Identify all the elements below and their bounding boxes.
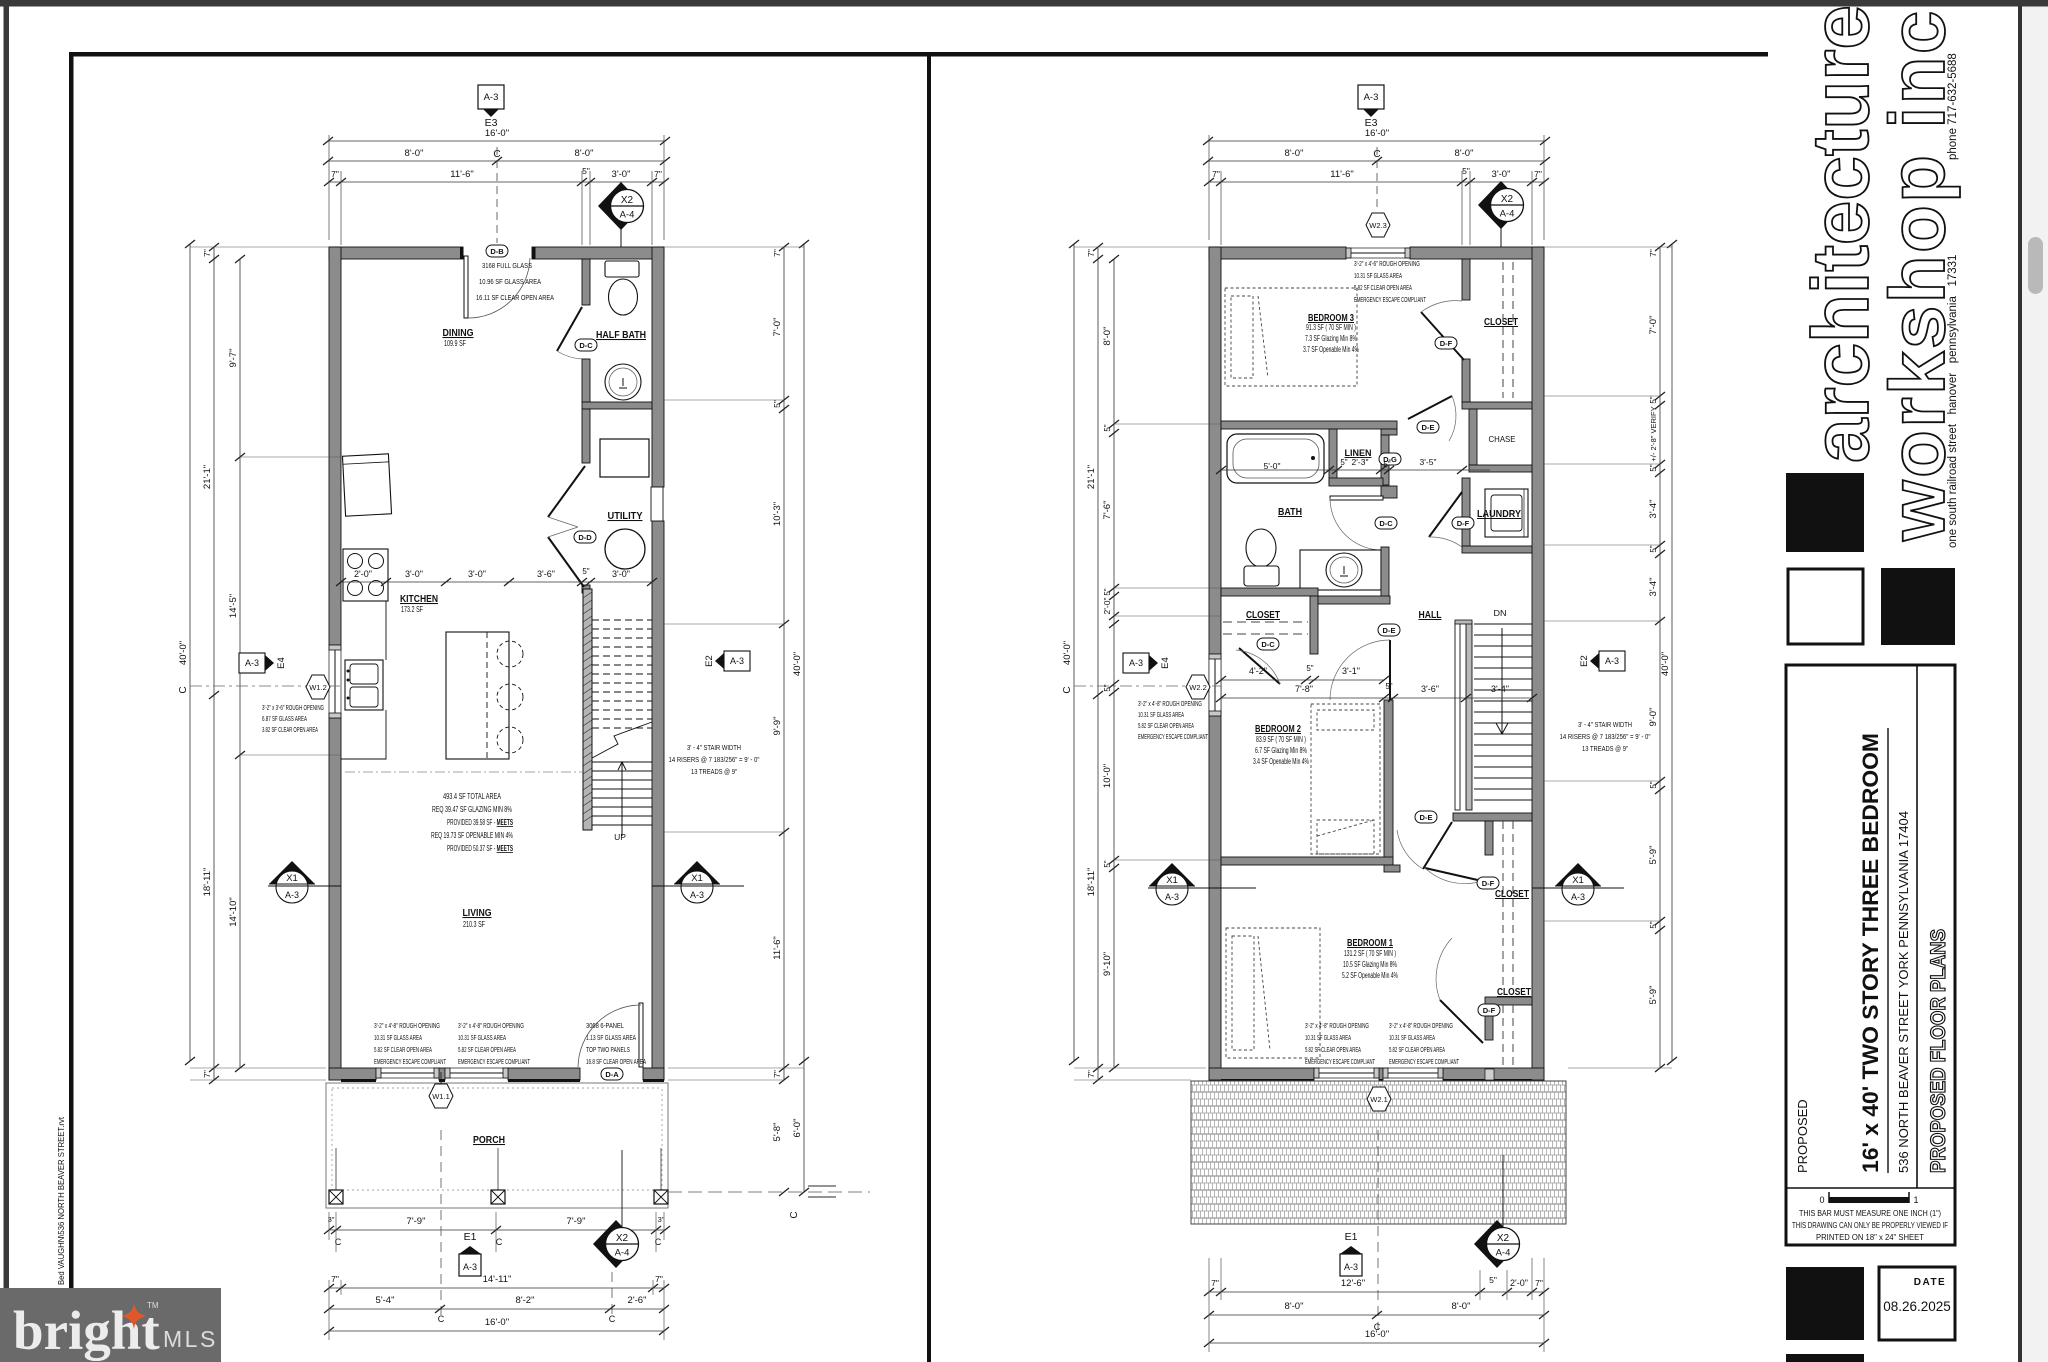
svg-text:11'-6": 11'-6" [450, 169, 474, 180]
svg-text:7": 7" [331, 169, 339, 179]
svg-text:8'-0": 8'-0" [1285, 1301, 1304, 1312]
svg-text:9'-10": 9'-10" [1102, 952, 1113, 976]
svg-text:D-F: D-F [1482, 879, 1495, 888]
svg-text:5.82 SF CLEAR OPEN AREA: 5.82 SF CLEAR OPEN AREA [1354, 283, 1412, 292]
svg-text:D-E: D-E [1422, 423, 1435, 432]
svg-text:HALF BATH: HALF BATH [596, 329, 646, 341]
svg-text:8'-0": 8'-0" [1285, 148, 1304, 159]
svg-text:EMERGENCY ESCAPE COMPLIANT: EMERGENCY ESCAPE COMPLIANT [1305, 1057, 1375, 1066]
svg-text:D-C: D-C [1379, 519, 1393, 528]
svg-text:X1: X1 [286, 873, 298, 884]
svg-text:LAUNDRY: LAUNDRY [1477, 509, 1521, 520]
svg-text:2'-6": 2'-6" [628, 1295, 647, 1306]
svg-text:5": 5" [1103, 588, 1112, 595]
svg-text:5'-8": 5'-8" [772, 1123, 783, 1142]
svg-text:7": 7" [1211, 1278, 1219, 1288]
svg-text:5": 5" [1489, 1275, 1497, 1285]
svg-text:KITCHEN: KITCHEN [400, 593, 438, 605]
svg-text:40'-0": 40'-0" [178, 641, 189, 665]
svg-text:6'-0": 6'-0" [792, 1119, 803, 1138]
svg-text:9'-9": 9'-9" [772, 717, 783, 736]
svg-text:16.11 SF CLEAR OPEN AREA: 16.11 SF CLEAR OPEN AREA [476, 293, 555, 302]
svg-text:5'-9": 5'-9" [1648, 846, 1659, 865]
svg-text:D-F: D-F [1440, 339, 1453, 348]
svg-text:10.96 SF GLASS AREA: 10.96 SF GLASS AREA [479, 277, 542, 286]
svg-text:7": 7" [331, 1274, 339, 1284]
svg-text:bright: bright [13, 1300, 160, 1361]
svg-text:7": 7" [654, 169, 662, 179]
svg-text:7": 7" [1648, 249, 1658, 257]
svg-text:5": 5" [582, 567, 589, 576]
svg-text:E2: E2 [704, 655, 715, 667]
svg-text:7": 7" [772, 249, 782, 257]
svg-text:8'-0": 8'-0" [1102, 327, 1113, 346]
svg-text:E1: E1 [1345, 1231, 1358, 1243]
svg-text:D-F: D-F [1483, 1006, 1496, 1015]
svg-text:MLS: MLS [163, 1326, 218, 1352]
svg-text:5.82 SF CLEAR OPEN AREA: 5.82 SF CLEAR OPEN AREA [1389, 1045, 1445, 1054]
svg-text:E4: E4 [1160, 657, 1171, 669]
svg-text:EMERGENCY ESCAPE COMPLIANT: EMERGENCY ESCAPE COMPLIANT [458, 1057, 530, 1066]
svg-text:EMERGENCY ESCAPE COMPLIANT: EMERGENCY ESCAPE COMPLIANT [1354, 295, 1426, 304]
svg-text:10.5 SF Glazing Min 8%: 10.5 SF Glazing Min 8% [1343, 960, 1397, 969]
svg-text:C: C [438, 1314, 445, 1324]
svg-text:16'-0": 16'-0" [1365, 128, 1389, 139]
svg-text:16'-0": 16'-0" [485, 1317, 509, 1328]
svg-text:10.31 SF GLASS AREA: 10.31 SF GLASS AREA [1138, 710, 1184, 719]
svg-text:5": 5" [1383, 460, 1390, 469]
svg-text:16'-0": 16'-0" [485, 128, 509, 139]
svg-text:E2: E2 [1579, 655, 1590, 667]
svg-text:PRINTED ON 18" x 24" SHEET: PRINTED ON 18" x 24" SHEET [1816, 1232, 1925, 1242]
svg-text:18'-11": 18'-11" [202, 868, 213, 897]
svg-text:10.31 SF GLASS AREA: 10.31 SF GLASS AREA [1354, 271, 1402, 280]
svg-text:5.82 SF CLEAR OPEN AREA: 5.82 SF CLEAR OPEN AREA [1305, 1045, 1361, 1054]
svg-text:14'-10": 14'-10" [228, 897, 239, 926]
svg-text:BEDROOM 1: BEDROOM 1 [1347, 938, 1393, 949]
svg-text:C: C [496, 1237, 503, 1247]
svg-text:40'-0": 40'-0" [1660, 652, 1671, 676]
svg-text:8'-2": 8'-2" [516, 1295, 535, 1306]
svg-text:D-E: D-E [1420, 813, 1433, 822]
svg-text:TOP TWO PANELS: TOP TWO PANELS [586, 1045, 630, 1054]
svg-text:A-3: A-3 [1605, 656, 1619, 666]
svg-text:7'-9": 7'-9" [407, 1216, 426, 1227]
svg-text:3' - 4" STAIR WIDTH: 3' - 4" STAIR WIDTH [1578, 720, 1632, 729]
svg-text:W2.2: W2.2 [1189, 683, 1207, 692]
svg-text:3.82 SF CLEAR OPEN AREA: 3.82 SF CLEAR OPEN AREA [262, 725, 318, 734]
svg-text:3'-0": 3'-0" [612, 169, 631, 180]
svg-text:3'-4": 3'-4" [1491, 684, 1509, 694]
svg-text:7": 7" [202, 249, 212, 257]
svg-text:LIVING: LIVING [463, 907, 492, 919]
svg-text:D-B: D-B [490, 247, 504, 256]
svg-text:5": 5" [1649, 921, 1658, 928]
svg-text:11'-6": 11'-6" [772, 936, 783, 960]
svg-text:PORCH: PORCH [473, 1134, 505, 1146]
svg-text:C: C [1062, 686, 1073, 693]
svg-text:11'-6": 11'-6" [1330, 169, 1354, 180]
svg-text:5": 5" [1103, 424, 1112, 431]
svg-text:10'-0": 10'-0" [1102, 764, 1113, 788]
svg-text:A-3: A-3 [285, 890, 299, 900]
svg-text:3'-2" x 4'-8" ROUGH OPENING: 3'-2" x 4'-8" ROUGH OPENING [1305, 1021, 1369, 1030]
svg-text:3'-0": 3'-0" [405, 569, 423, 579]
svg-text:D-F: D-F [1457, 519, 1470, 528]
svg-text:X2: X2 [1497, 1233, 1510, 1244]
svg-text:3'-4": 3'-4" [1648, 500, 1659, 519]
svg-text:5.82 SF CLEAR OPEN AREA: 5.82 SF CLEAR OPEN AREA [458, 1045, 516, 1054]
svg-text:7'-0": 7'-0" [1648, 316, 1659, 335]
svg-text:D-D: D-D [578, 533, 592, 542]
svg-text:D-C: D-C [579, 341, 593, 350]
svg-text:A-3: A-3 [1364, 92, 1379, 103]
svg-text:A-4: A-4 [615, 1248, 630, 1259]
svg-text:UP: UP [614, 832, 626, 842]
svg-text:5": 5" [1103, 860, 1112, 867]
svg-text:C: C [609, 1314, 616, 1324]
svg-text:7'-8": 7'-8" [1295, 684, 1313, 694]
svg-text:5'-0": 5'-0" [1264, 461, 1281, 471]
svg-text:16.8 SF CLEAR OPEN AREA: 16.8 SF CLEAR OPEN AREA [586, 1057, 646, 1066]
svg-text:E4: E4 [276, 657, 287, 669]
svg-text:14'-11": 14'-11" [483, 1274, 512, 1285]
svg-text:6.7 SF Glazing Min 8%: 6.7 SF Glazing Min 8% [1255, 746, 1307, 755]
svg-text:THIS BAR MUST MEASURE ONE INCH: THIS BAR MUST MEASURE ONE INCH (1") [1799, 1208, 1941, 1218]
svg-text:0: 0 [1819, 1195, 1824, 1205]
svg-text:3068 6-PANEL: 3068 6-PANEL [586, 1021, 624, 1030]
svg-text:5.82 SF CLEAR OPEN AREA: 5.82 SF CLEAR OPEN AREA [374, 1045, 432, 1054]
svg-text:3'-2" x 4'-8" ROUGH OPENING: 3'-2" x 4'-8" ROUGH OPENING [1389, 1021, 1453, 1030]
svg-text:C: C [1374, 1322, 1381, 1332]
svg-text:A-3: A-3 [463, 1262, 477, 1272]
svg-text:C: C [789, 1211, 800, 1218]
svg-text:6.87 SF GLASS AREA: 6.87 SF GLASS AREA [262, 714, 307, 723]
svg-text:DATE: DATE [1914, 1277, 1946, 1288]
svg-text:A-3: A-3 [1165, 892, 1179, 902]
svg-text:CLOSET: CLOSET [1495, 889, 1529, 900]
svg-text:X2: X2 [621, 195, 634, 206]
svg-text:A-3: A-3 [245, 658, 259, 668]
svg-text:DINING: DINING [443, 327, 474, 339]
svg-text:12'-6": 12'-6" [1341, 1278, 1365, 1289]
svg-text:BEDROOM 2: BEDROOM 2 [1255, 724, 1301, 735]
svg-text:3.7 SF Openable Min 4%: 3.7 SF Openable Min 4% [1303, 345, 1359, 354]
svg-text:8'-0": 8'-0" [1452, 1301, 1471, 1312]
svg-text:10.31 SF GLASS AREA: 10.31 SF GLASS AREA [1305, 1033, 1351, 1042]
svg-text:3'-0": 3'-0" [468, 569, 486, 579]
svg-text:PROVIDED 50.37 SF - MEETS: PROVIDED 50.37 SF - MEETS [447, 844, 513, 853]
svg-text:5": 5" [1462, 166, 1470, 176]
svg-text:A-3: A-3 [1344, 1262, 1358, 1272]
svg-text:3'-0": 3'-0" [1492, 169, 1511, 180]
svg-text:493.4 SF TOTAL AREA: 493.4 SF TOTAL AREA [443, 792, 501, 801]
svg-text:9'-0": 9'-0" [1648, 708, 1659, 727]
svg-text:D-E: D-E [1383, 626, 1396, 635]
svg-text:5.2 SF Openable Min 4%: 5.2 SF Openable Min 4% [1342, 971, 1398, 980]
svg-text:5": 5" [1340, 458, 1347, 467]
svg-text:5.82 SF CLEAR OPEN AREA: 5.82 SF CLEAR OPEN AREA [1138, 721, 1194, 730]
svg-text:8'-0": 8'-0" [575, 148, 594, 159]
svg-text:architecture: architecture [1796, 5, 1885, 463]
svg-text:21'-1": 21'-1" [202, 465, 213, 489]
svg-text:A-4: A-4 [1496, 1248, 1511, 1259]
svg-text:X1: X1 [691, 873, 703, 884]
svg-text:7": 7" [772, 1070, 782, 1078]
svg-text:109.9 SF: 109.9 SF [444, 339, 466, 348]
svg-text:5": 5" [1649, 464, 1658, 471]
svg-text:3'-1": 3'-1" [1342, 666, 1360, 676]
svg-text:A-4: A-4 [620, 210, 635, 221]
svg-text:A-4: A-4 [1500, 209, 1515, 220]
svg-text:173.2 SF: 173.2 SF [401, 605, 423, 614]
svg-text:3'-6": 3'-6" [537, 569, 555, 579]
svg-text:210.3 SF: 210.3 SF [463, 920, 485, 929]
svg-text:3'-2" x 4'-8" ROUGH OPENING: 3'-2" x 4'-8" ROUGH OPENING [374, 1021, 440, 1030]
svg-text:13 TREADS @ 9": 13 TREADS @ 9" [1582, 744, 1628, 753]
svg-text:14 RISERS @ 7 183/256" = 9' -: 14 RISERS @ 7 183/256" = 9' - 0" [669, 755, 760, 764]
svg-text:3'-5": 3'-5" [1420, 457, 1437, 467]
svg-text:Bed VAUGHN\536 NORTH BEAVER ST: Bed VAUGHN\536 NORTH BEAVER STREET.rvt [56, 1116, 66, 1285]
svg-text:D-C: D-C [1261, 640, 1275, 649]
svg-text:3'-0": 3'-0" [612, 569, 630, 579]
svg-text:10.31 SF GLASS AREA: 10.31 SF GLASS AREA [458, 1033, 506, 1042]
svg-text:21'-1": 21'-1" [1086, 465, 1097, 489]
svg-text:3.4 SF Openable Min 4%: 3.4 SF Openable Min 4% [1253, 757, 1309, 766]
svg-text:3'-2" x 3'-6" ROUGH OPENING: 3'-2" x 3'-6" ROUGH OPENING [262, 703, 324, 712]
svg-text:W1.1: W1.1 [432, 1092, 450, 1101]
svg-text:THIS DRAWING CAN ONLY BE PROPE: THIS DRAWING CAN ONLY BE PROPERLY VIEWED… [1792, 1220, 1948, 1230]
svg-text:5": 5" [1649, 545, 1658, 552]
svg-text:2'-3": 2'-3" [1352, 457, 1369, 467]
svg-text:7": 7" [1534, 169, 1542, 179]
svg-text:EMERGENCY ESCAPE COMPLIANT: EMERGENCY ESCAPE COMPLIANT [1389, 1057, 1459, 1066]
svg-text:UTILITY: UTILITY [608, 510, 643, 522]
svg-text:08.26.2025: 08.26.2025 [1883, 1299, 1951, 1314]
svg-text:X2: X2 [616, 1233, 629, 1244]
svg-text:X1: X1 [1572, 875, 1584, 886]
svg-text:W2.3: W2.3 [1369, 221, 1387, 230]
svg-text:EMERGENCY ESCAPE COMPLIANT: EMERGENCY ESCAPE COMPLIANT [1138, 732, 1208, 741]
svg-text:2'-0": 2'-0" [1102, 598, 1112, 615]
svg-text:+/- 2'-8" VERIFY: +/- 2'-8" VERIFY [1649, 406, 1658, 461]
svg-text:1.13 SF GLASS AREA: 1.13 SF GLASS AREA [586, 1033, 636, 1042]
svg-text:CLOSET: CLOSET [1246, 610, 1280, 621]
svg-text:40'-0": 40'-0" [792, 652, 803, 676]
svg-text:18'-11": 18'-11" [1086, 868, 1097, 897]
svg-text:13 TREADS @ 9": 13 TREADS @ 9" [691, 767, 737, 776]
svg-text:5": 5" [772, 400, 782, 408]
svg-text:DN: DN [1494, 608, 1507, 618]
svg-text:16' x 40' TWO STORY THREE BEDR: 16' x 40' TWO STORY THREE BEDROOM [1858, 733, 1883, 1173]
svg-text:5": 5" [1103, 684, 1112, 691]
svg-text:3'-2" x 4'-6" ROUGH OPENING: 3'-2" x 4'-6" ROUGH OPENING [1354, 259, 1420, 268]
svg-text:3' - 4" STAIR WIDTH: 3' - 4" STAIR WIDTH [687, 743, 741, 752]
svg-text:7.3 SF Glazing Min 8%: 7.3 SF Glazing Min 8% [1305, 334, 1357, 343]
svg-text:131.2 SF ( 70 SF MIN ): 131.2 SF ( 70 SF MIN ) [1344, 949, 1396, 958]
svg-text:D-A: D-A [605, 1070, 619, 1079]
svg-text:536 NORTH BEAVER STREET YORK P: 536 NORTH BEAVER STREET YORK PENNSYLVANI… [1896, 811, 1911, 1173]
svg-text:TM: TM [147, 1301, 159, 1310]
svg-text:4'-2": 4'-2" [1249, 666, 1267, 676]
svg-text:X2: X2 [1501, 194, 1514, 205]
svg-text:14'-5": 14'-5" [228, 594, 239, 618]
svg-text:REQ 39.47 SF GLAZING MIN 8%: REQ 39.47 SF GLAZING MIN 8% [432, 805, 512, 814]
svg-text:PROVIDED 39.58 SF - MEETS: PROVIDED 39.58 SF - MEETS [447, 818, 513, 827]
svg-text:9'-7": 9'-7" [228, 349, 239, 368]
svg-text:10.31 SF GLASS AREA: 10.31 SF GLASS AREA [374, 1033, 422, 1042]
svg-text:A-3: A-3 [1571, 892, 1585, 902]
svg-text:3'-2" x 4'-8" ROUGH OPENING: 3'-2" x 4'-8" ROUGH OPENING [1138, 699, 1202, 708]
svg-text:7": 7" [1086, 249, 1096, 257]
svg-text:5": 5" [1306, 664, 1313, 673]
svg-text:5": 5" [582, 166, 590, 176]
svg-text:3168 FULL GLASS: 3168 FULL GLASS [482, 261, 532, 270]
svg-text:W2.1: W2.1 [1370, 1095, 1388, 1104]
svg-text:5'-4": 5'-4" [376, 1295, 395, 1306]
svg-text:C: C [178, 686, 189, 693]
svg-text:BATH: BATH [1278, 507, 1302, 518]
svg-text:A-3: A-3 [484, 92, 499, 103]
svg-text:5": 5" [1649, 781, 1658, 788]
svg-text:CHASE: CHASE [1489, 434, 1516, 444]
svg-text:1: 1 [1913, 1195, 1918, 1205]
svg-text:CLOSET: CLOSET [1497, 987, 1531, 998]
svg-text:HALL: HALL [1419, 610, 1442, 621]
svg-text:E1: E1 [464, 1231, 477, 1243]
svg-text:3'-6": 3'-6" [1421, 684, 1439, 694]
svg-text:8'-0": 8'-0" [405, 148, 424, 159]
svg-text:3'-4": 3'-4" [1648, 578, 1659, 597]
svg-text:7": 7" [202, 1070, 212, 1078]
svg-text:5": 5" [1385, 682, 1392, 691]
svg-text:one south railroad street ha: one south railroad street hanover pennsy… [1947, 255, 1959, 548]
svg-text:3'-2" x 4'-8" ROUGH OPENING: 3'-2" x 4'-8" ROUGH OPENING [458, 1021, 524, 1030]
svg-text:10.31 SF GLASS AREA: 10.31 SF GLASS AREA [1389, 1033, 1435, 1042]
svg-text:2'-0": 2'-0" [1510, 1278, 1528, 1288]
svg-text:7": 7" [1086, 1070, 1096, 1078]
svg-text:5'-9": 5'-9" [1648, 986, 1659, 1005]
svg-text:EMERGENCY ESCAPE COMPLIANT: EMERGENCY ESCAPE COMPLIANT [374, 1057, 446, 1066]
svg-text:7'-0": 7'-0" [772, 318, 783, 337]
svg-text:7": 7" [1535, 1278, 1543, 1288]
svg-text:PROPOSED FLOOR PLANS: PROPOSED FLOOR PLANS [1927, 929, 1950, 1173]
svg-text:83.9 SF ( 70 SF MIN ): 83.9 SF ( 70 SF MIN ) [1256, 735, 1306, 744]
svg-text:W1.2: W1.2 [309, 683, 327, 692]
svg-text:7": 7" [1212, 169, 1220, 179]
svg-text:5": 5" [1649, 396, 1658, 403]
svg-text:7'-6": 7'-6" [1102, 501, 1113, 520]
svg-text:10'-3": 10'-3" [772, 502, 783, 526]
svg-text:7'-9": 7'-9" [567, 1216, 586, 1227]
svg-text:8'-0": 8'-0" [1455, 148, 1474, 159]
svg-text:2'-0": 2'-0" [354, 569, 372, 579]
svg-text:PROPOSED: PROPOSED [1795, 1099, 1810, 1173]
svg-text:REQ 19.73 SF OPENABLE MIN 4%: REQ 19.73 SF OPENABLE MIN 4% [431, 831, 513, 840]
svg-text:14 RISERS @ 7 183/256" = 9' -: 14 RISERS @ 7 183/256" = 9' - 0" [1560, 732, 1651, 741]
svg-text:X1: X1 [1166, 875, 1178, 886]
svg-text:phone 717-632-5688: phone 717-632-5688 [1947, 53, 1959, 160]
svg-text:40'-0": 40'-0" [1062, 641, 1073, 665]
svg-text:7": 7" [655, 1274, 663, 1284]
svg-text:A-3: A-3 [690, 890, 704, 900]
svg-text:91.3 SF ( 70 SF MIN ): 91.3 SF ( 70 SF MIN ) [1306, 323, 1356, 332]
svg-text:A-3: A-3 [1129, 658, 1143, 668]
svg-text:A-3: A-3 [730, 656, 744, 666]
